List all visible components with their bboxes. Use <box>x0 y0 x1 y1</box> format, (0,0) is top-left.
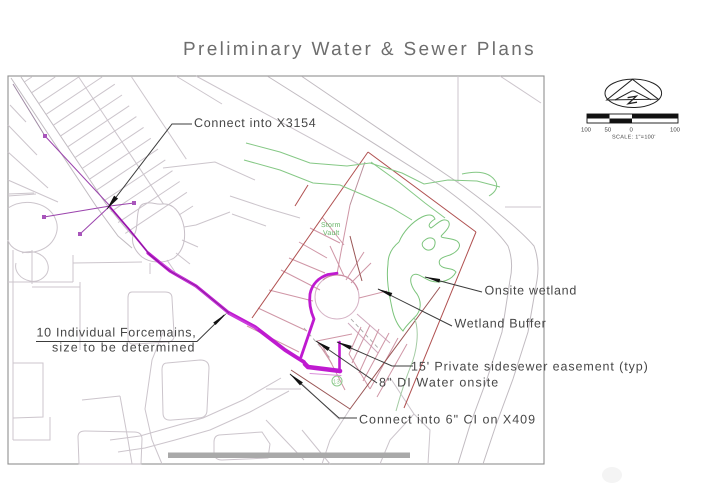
svg-text:Onsite wetland: Onsite wetland <box>485 284 577 298</box>
svg-text:100: 100 <box>581 127 592 134</box>
svg-text:Connect into 6" CI on X409: Connect into 6" CI on X409 <box>359 413 536 427</box>
svg-text:10 Individual Forcemains,: 10 Individual Forcemains, <box>37 326 197 340</box>
svg-text:13: 13 <box>333 379 340 386</box>
svg-text:Wetland Buffer: Wetland Buffer <box>455 317 547 331</box>
svg-text:15' Private sidesewer easement: 15' Private sidesewer easement (typ) <box>411 360 649 374</box>
svg-text:Preliminary Water & Sewer Plan: Preliminary Water & Sewer Plans <box>183 39 536 60</box>
svg-text:SCALE: 1"=100': SCALE: 1"=100' <box>612 135 656 141</box>
svg-text:Vault: Vault <box>323 229 339 237</box>
svg-text:Storm: Storm <box>321 222 341 229</box>
svg-text:Connect into X3154: Connect into X3154 <box>194 116 316 130</box>
svg-text:50: 50 <box>605 127 612 134</box>
svg-text:8" DI Water onsite: 8" DI Water onsite <box>379 376 499 390</box>
svg-text:size to be determined: size to be determined <box>52 341 196 355</box>
svg-text:100: 100 <box>670 127 681 134</box>
